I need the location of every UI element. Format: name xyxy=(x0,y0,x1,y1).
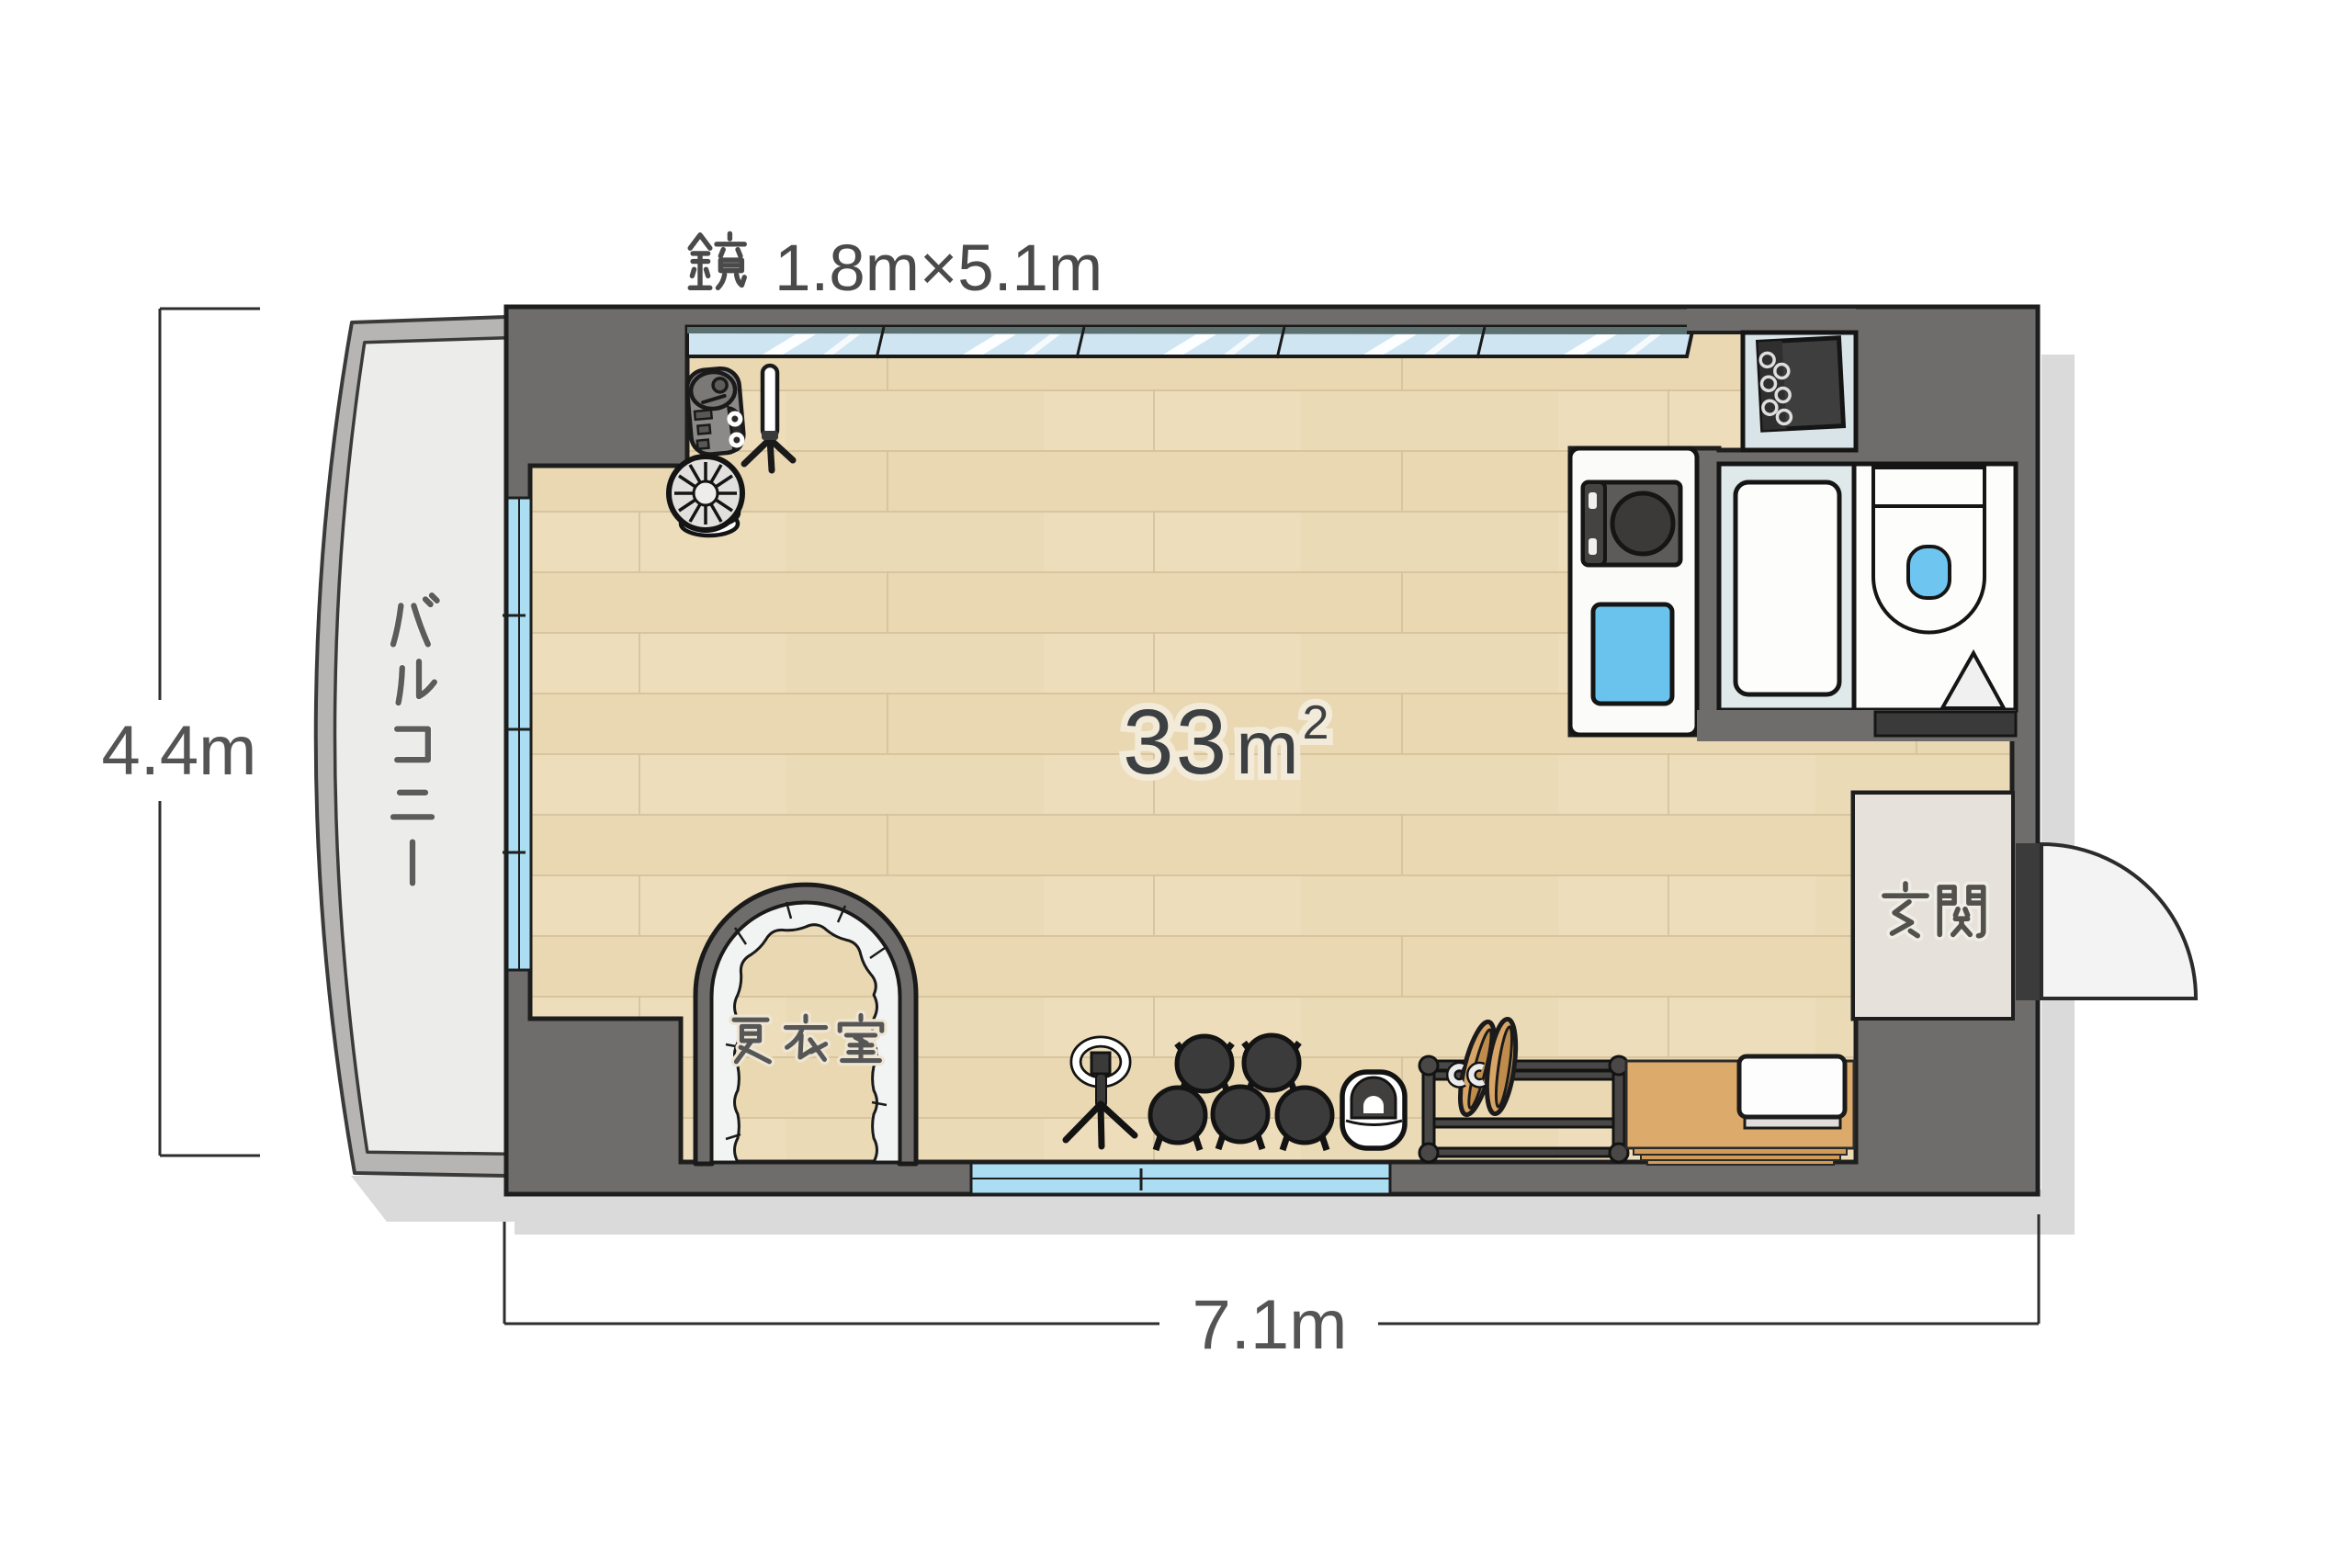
svg-text:1.8m×5.1m: 1.8m×5.1m xyxy=(775,232,1102,305)
svg-text:4.4m: 4.4m xyxy=(102,712,257,790)
svg-text:7.1m: 7.1m xyxy=(1193,1286,1348,1364)
svg-text:33m2: 33m2 xyxy=(1123,691,1330,794)
